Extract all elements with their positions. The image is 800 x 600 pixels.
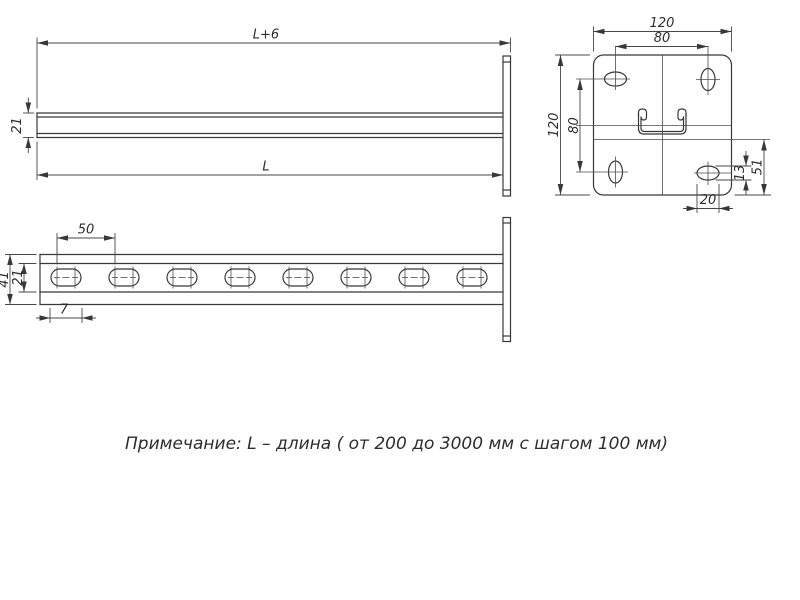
- dim-label-slot-offset: 7: [60, 303, 69, 318]
- strut-bar-side: [37, 113, 503, 138]
- technical-drawing-page: L+6 21 L: [0, 0, 800, 600]
- dim-label-center-to-edge: 51: [751, 159, 766, 176]
- mounting-slot: [399, 267, 429, 289]
- dim-label-hole-pitch-vertical: 80: [567, 117, 582, 134]
- plan-view: 50 7 41 21: [0, 218, 511, 342]
- mounting-slot: [457, 267, 487, 289]
- dim-channel-width: 21: [11, 264, 36, 293]
- plate-hole-bottom-left: [576, 157, 628, 188]
- dim-overall-length: L+6: [37, 28, 511, 109]
- dim-label-length: L: [262, 160, 269, 175]
- plate-hole-bottom-right: [694, 162, 732, 186]
- mounting-slot: [51, 267, 81, 289]
- dim-length: L: [37, 142, 503, 180]
- dim-label-profile-height: 21: [10, 117, 25, 134]
- dim-label-plate-height: 120: [547, 113, 562, 138]
- end-plate-view: 120 80 120 80 51: [547, 16, 771, 213]
- plate-hole-top-left: [576, 47, 630, 91]
- mounting-slot: [225, 267, 255, 289]
- mounting-slots-row: [51, 267, 487, 289]
- plate-hole-top-right: [696, 47, 720, 96]
- mounting-slot: [283, 267, 313, 289]
- dim-slot-offset: 7: [37, 303, 96, 323]
- dim-hole-length: 20: [684, 185, 733, 213]
- dim-profile-height: 21: [10, 98, 34, 153]
- dim-label-hole-pitch-horizontal: 80: [654, 31, 671, 46]
- dim-label-overall-length: L+6: [253, 28, 279, 43]
- dim-label-hole-width: 13: [733, 165, 748, 182]
- dim-hole-pitch-horizontal: 80: [616, 31, 709, 49]
- mounting-slot: [341, 267, 371, 289]
- dim-hole-pitch-vertical: 80: [567, 79, 583, 172]
- dim-slot-pitch: 50: [57, 223, 115, 265]
- end-flange-plan: [503, 218, 511, 342]
- mounting-slot: [167, 267, 197, 289]
- technical-drawing-canvas: L+6 21 L: [0, 0, 800, 600]
- dim-label-plate-width: 120: [650, 16, 675, 31]
- side-view: L+6 21 L: [10, 28, 511, 197]
- mounting-slot: [109, 267, 139, 289]
- dim-label-hole-length: 20: [700, 193, 717, 208]
- dim-label-channel-width: 21: [11, 269, 26, 286]
- dim-label-slot-pitch: 50: [78, 223, 95, 238]
- note-text: Примечание: L – длина ( от 200 до 3000 м…: [125, 434, 668, 454]
- end-flange-side: [503, 56, 511, 196]
